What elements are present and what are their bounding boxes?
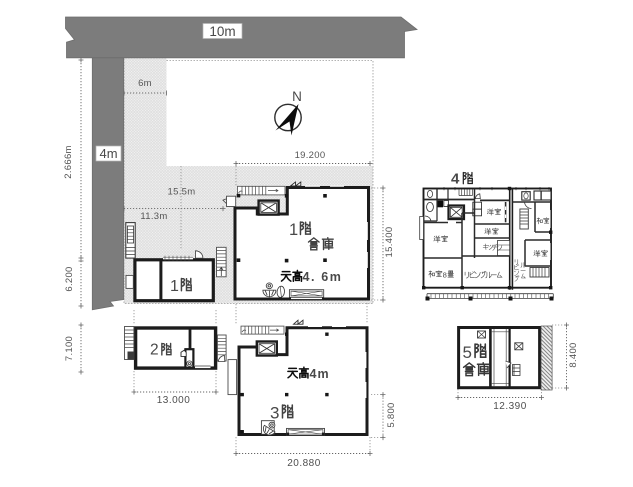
svg-text:3: 3 [270,404,279,423]
svg-text:1: 1 [289,221,298,239]
svg-text:20.880: 20.880 [287,458,321,469]
svg-text:N: N [292,89,302,104]
svg-text:5: 5 [463,343,472,362]
svg-text:4m: 4m [310,367,330,381]
svg-text:4. 6m: 4. 6m [303,270,343,284]
svg-text:8: 8 [443,271,447,280]
svg-text:6m: 6m [138,78,152,89]
svg-text:7.100: 7.100 [64,336,75,361]
svg-text:1: 1 [170,278,179,295]
svg-text:15.400: 15.400 [384,227,395,258]
svg-text:2.666m: 2.666m [63,145,74,179]
svg-text:13.000: 13.000 [157,395,191,406]
svg-text:19.200: 19.200 [295,150,326,161]
svg-text:4m: 4m [99,146,117,161]
svg-text:15.5m: 15.5m [168,187,196,198]
svg-text:10m: 10m [209,24,235,39]
svg-text:8.400: 8.400 [568,342,579,367]
svg-text:11.3m: 11.3m [140,211,167,222]
svg-text:12.390: 12.390 [493,401,527,412]
svg-text:4: 4 [451,171,460,188]
svg-text:6.200: 6.200 [64,266,75,291]
svg-text:5.800: 5.800 [386,402,397,427]
svg-text:2: 2 [150,342,159,359]
